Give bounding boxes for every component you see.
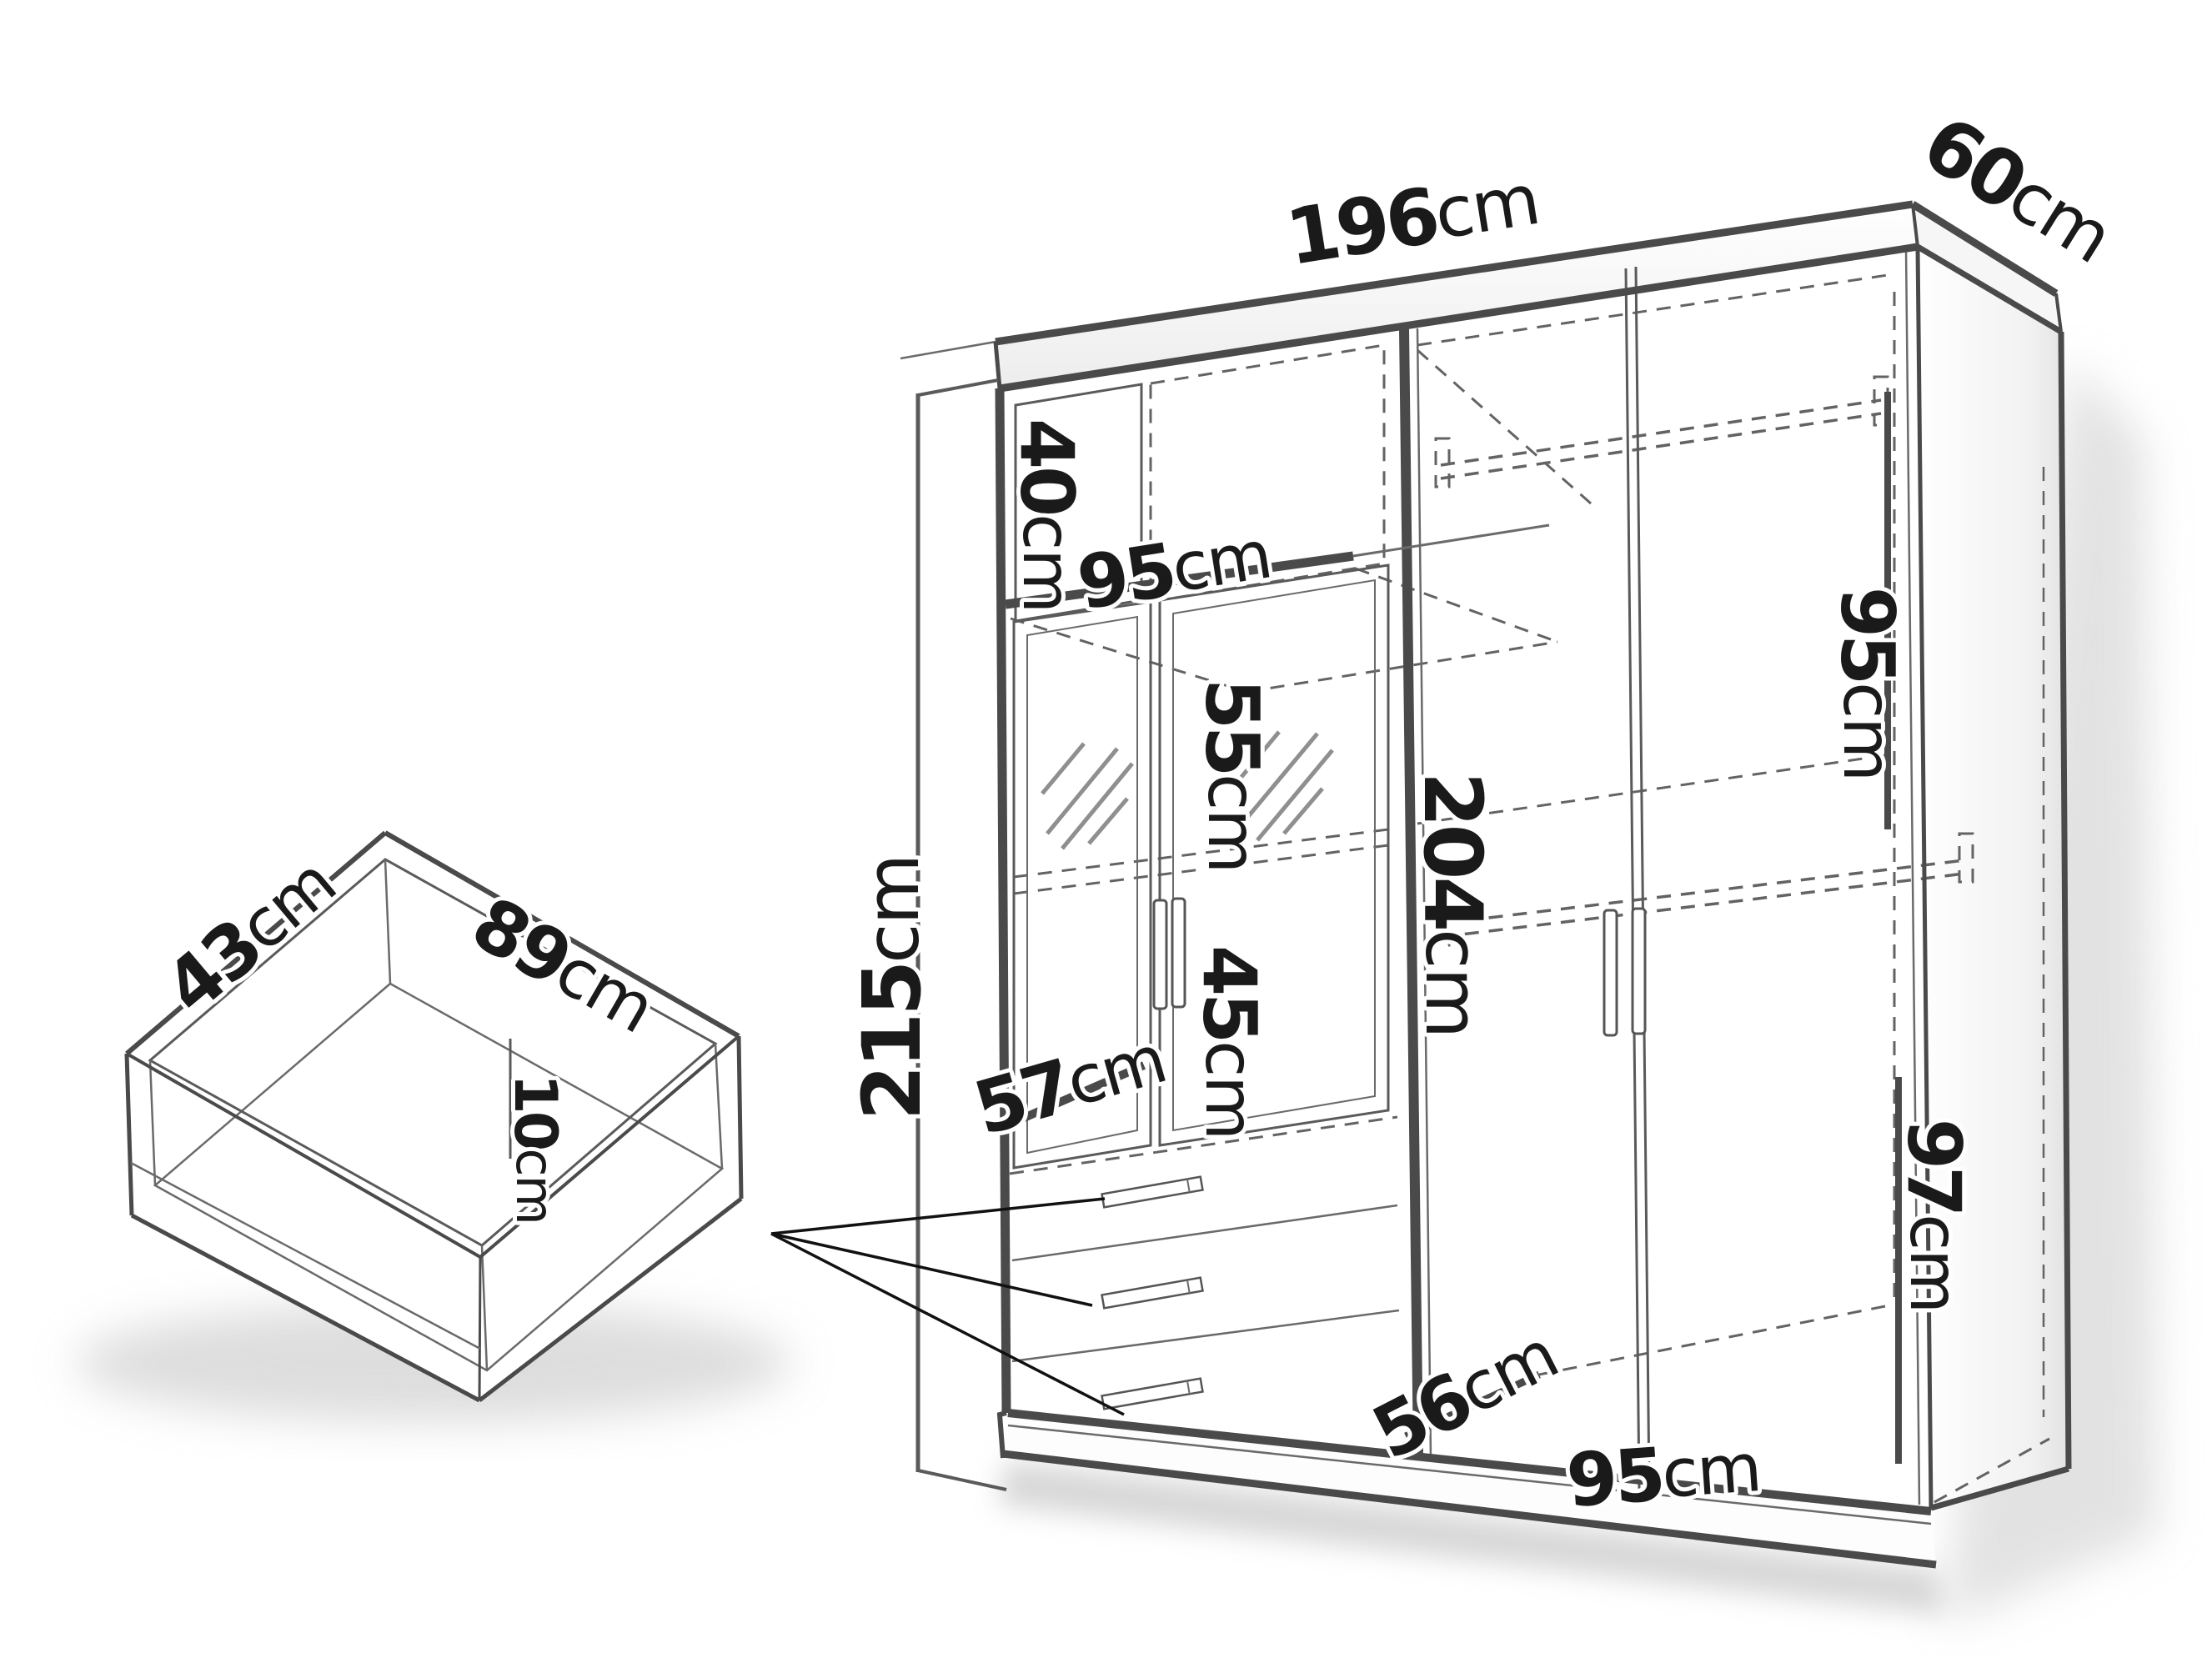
dim-line-tick-bottom <box>918 1470 1006 1490</box>
dim-drawer-height-label: 10cm <box>501 1074 569 1224</box>
mirror-door-left-handle <box>1154 900 1166 1009</box>
wardrobe-right-side-face <box>1918 247 2069 1508</box>
dim-right-lower-label: 97cm <box>1892 1119 1978 1312</box>
diagram-canvas: 196cm 60cm 215cm 40cm 95cm 55cm 204cm 45… <box>0 0 2212 1658</box>
dim-cubby-height-label: 40cm <box>1005 418 1091 612</box>
dim-mirror-lower-label: 45cm <box>1187 945 1273 1139</box>
wardrobe-dimension-diagram: 196cm 60cm 215cm 40cm 95cm 55cm 204cm 45… <box>0 0 2212 1658</box>
background-wall-line <box>900 342 996 358</box>
right-door-right-handle <box>1633 909 1645 1034</box>
dim-line-tick-top <box>918 380 998 395</box>
right-door-left-handle <box>1604 910 1617 1035</box>
dim-mirror-upper-label: 55cm <box>1190 679 1276 872</box>
drawer-right-corner-edge <box>739 1036 741 1199</box>
dim-height-left-label: 215cm <box>845 855 939 1121</box>
mirror-door-right-handle <box>1172 899 1185 1007</box>
dim-right-upper-label: 95cm <box>1825 587 1911 780</box>
dim-interior-height-label: 204cm <box>1406 772 1499 1038</box>
drawer-front-corner-edge <box>479 1257 480 1400</box>
